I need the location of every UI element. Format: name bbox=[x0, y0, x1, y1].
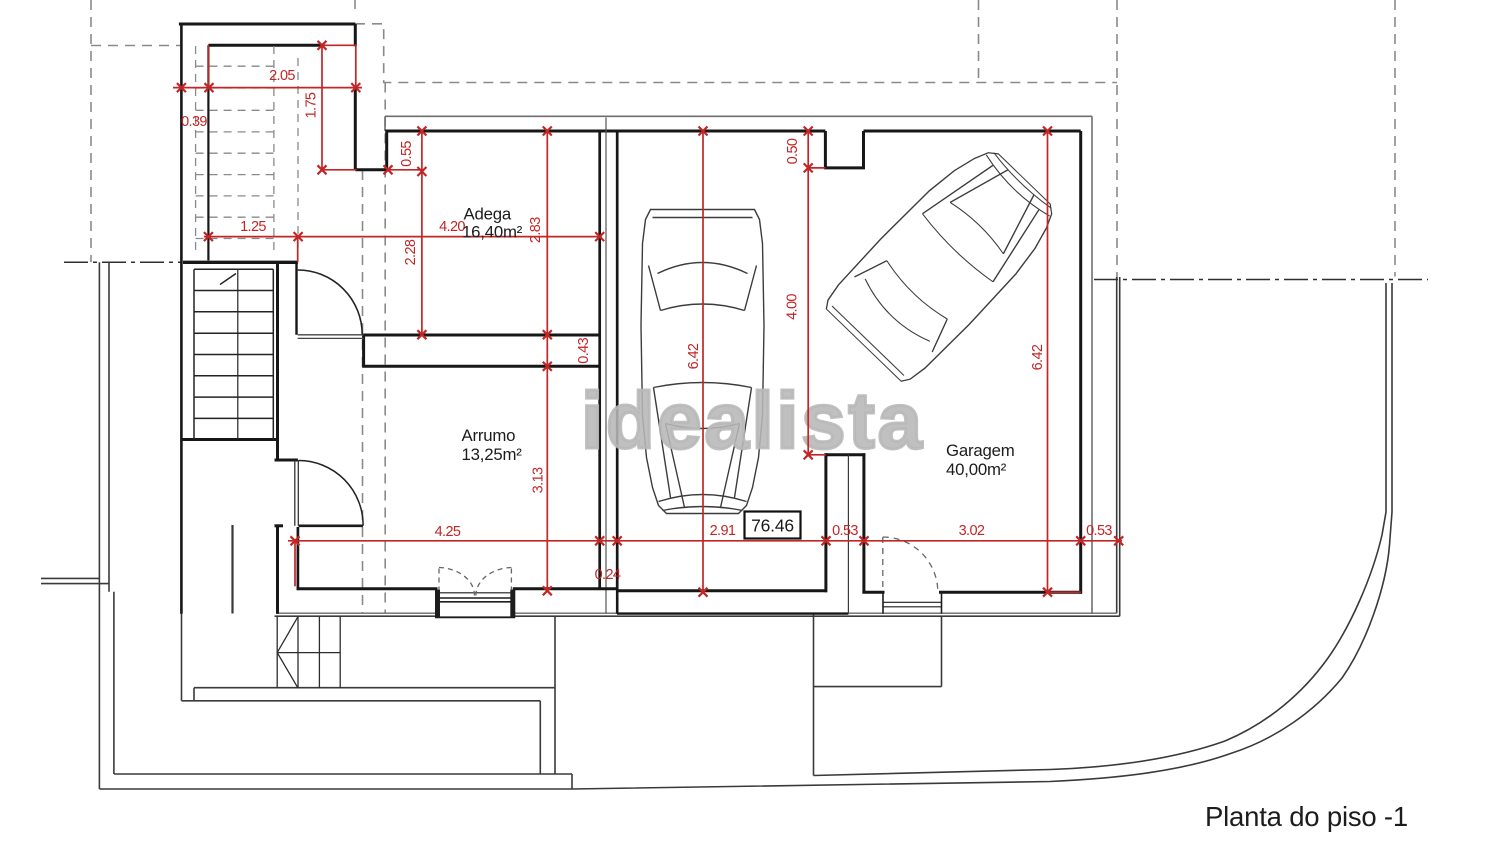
svg-text:40,00m²: 40,00m² bbox=[946, 460, 1007, 479]
svg-text:3.13: 3.13 bbox=[530, 467, 546, 493]
svg-text:Planta do piso -1: Planta do piso -1 bbox=[1205, 801, 1408, 832]
svg-text:16,40m²: 16,40m² bbox=[462, 223, 523, 242]
svg-text:76.46: 76.46 bbox=[751, 516, 794, 536]
svg-text:0.53: 0.53 bbox=[832, 523, 858, 539]
svg-text:1.75: 1.75 bbox=[304, 92, 320, 118]
svg-text:4.25: 4.25 bbox=[435, 524, 461, 540]
svg-text:2.91: 2.91 bbox=[710, 523, 736, 539]
svg-text:1.25: 1.25 bbox=[240, 219, 266, 235]
svg-text:2.28: 2.28 bbox=[403, 239, 419, 265]
svg-text:Arrumo: Arrumo bbox=[462, 426, 516, 445]
svg-text:0.43: 0.43 bbox=[576, 337, 592, 363]
svg-text:6.42: 6.42 bbox=[686, 343, 702, 369]
svg-text:0.50: 0.50 bbox=[785, 138, 801, 164]
svg-text:13,25m²: 13,25m² bbox=[462, 445, 523, 464]
svg-text:0.53: 0.53 bbox=[1086, 523, 1112, 539]
svg-text:3.02: 3.02 bbox=[959, 523, 985, 539]
svg-text:2.83: 2.83 bbox=[528, 217, 544, 243]
svg-text:2.05: 2.05 bbox=[269, 68, 295, 84]
svg-text:0.39: 0.39 bbox=[181, 114, 207, 130]
svg-text:Adega: Adega bbox=[464, 205, 512, 224]
svg-text:idealista: idealista bbox=[581, 376, 925, 465]
svg-text:0.24: 0.24 bbox=[595, 567, 621, 583]
svg-text:Garagem: Garagem bbox=[946, 441, 1015, 460]
svg-text:4.00: 4.00 bbox=[785, 294, 801, 320]
svg-text:0.55: 0.55 bbox=[399, 141, 415, 167]
svg-text:6.42: 6.42 bbox=[1030, 344, 1046, 370]
